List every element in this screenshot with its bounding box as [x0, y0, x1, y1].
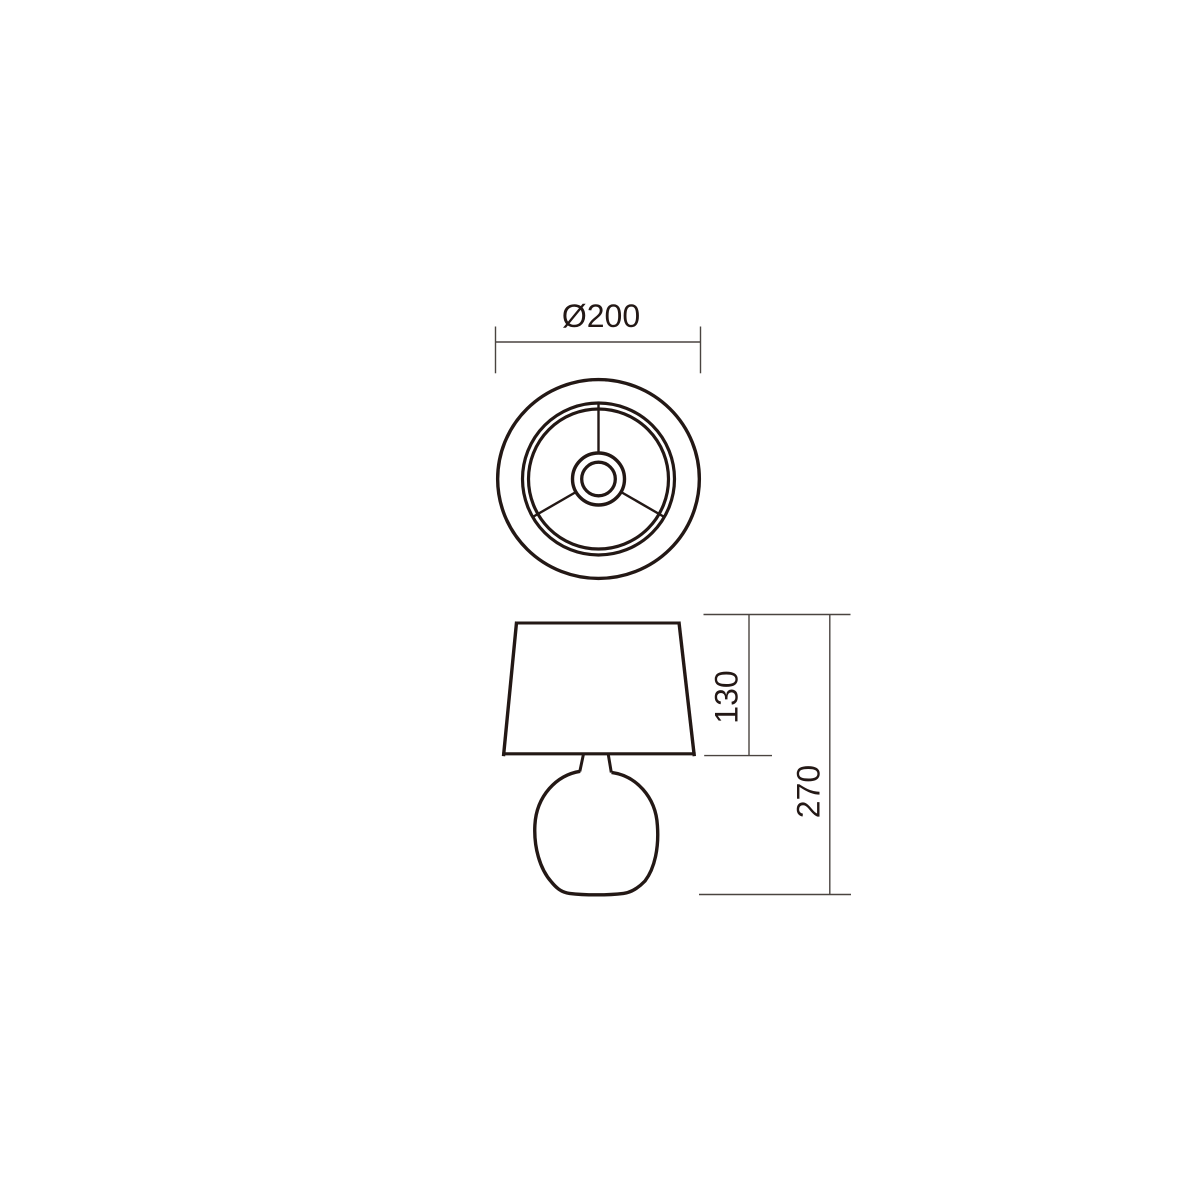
svg-text:270: 270 [791, 765, 827, 818]
svg-text:Ø200: Ø200 [562, 298, 640, 334]
svg-text:130: 130 [708, 670, 744, 723]
